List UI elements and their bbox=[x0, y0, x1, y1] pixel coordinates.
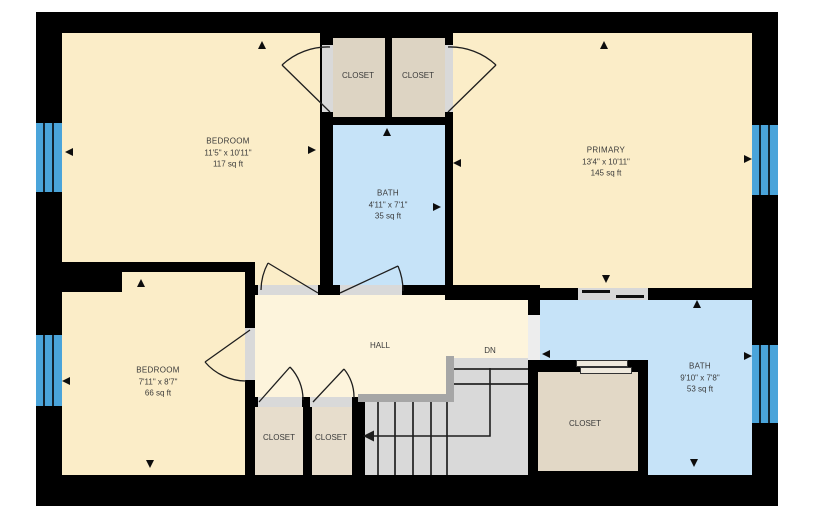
door-opening bbox=[258, 397, 302, 407]
stair-tread bbox=[412, 402, 414, 475]
wall bbox=[352, 397, 365, 475]
direction-arrow-icon bbox=[602, 275, 610, 283]
room-name: BEDROOM bbox=[204, 136, 251, 148]
room-area: 117 sq ft bbox=[204, 159, 251, 171]
wall bbox=[322, 117, 453, 125]
room-dimensions: 13'4" x 10'11" bbox=[582, 156, 630, 168]
pocket-door bbox=[578, 288, 648, 300]
closet-label: CLOSET bbox=[402, 70, 434, 82]
window-pane-divider bbox=[759, 125, 761, 195]
sliding-door-panel bbox=[580, 367, 632, 374]
door-opening bbox=[245, 328, 255, 380]
room-bedroom-1 bbox=[62, 33, 320, 262]
room-area: 53 sq ft bbox=[680, 384, 719, 396]
window bbox=[752, 125, 778, 195]
room-dimensions: 9'10" x 7'8" bbox=[680, 372, 719, 384]
window bbox=[36, 123, 62, 192]
window-pane-divider bbox=[52, 123, 54, 192]
sliding-closet-door bbox=[576, 360, 632, 375]
direction-arrow-icon bbox=[258, 41, 266, 49]
direction-arrow-icon bbox=[65, 148, 73, 156]
room-dimensions: 11'5" x 10'11" bbox=[204, 147, 251, 159]
room-dimensions: 4'11" x 7'1" bbox=[369, 199, 408, 211]
pocket-door-panel bbox=[582, 290, 610, 293]
window bbox=[752, 345, 778, 423]
room-area: 66 sq ft bbox=[136, 388, 179, 400]
window-pane-divider bbox=[43, 335, 45, 406]
room-dimensions: 7'11" x 8'7" bbox=[136, 376, 179, 388]
direction-arrow-icon bbox=[308, 146, 316, 154]
window-pane-divider bbox=[759, 345, 761, 423]
window-pane-divider bbox=[768, 125, 770, 195]
direction-arrow-icon bbox=[744, 155, 752, 163]
door-opening bbox=[528, 315, 540, 360]
room-name: BEDROOM bbox=[136, 365, 179, 377]
window-pane-divider bbox=[43, 123, 45, 192]
direction-arrow-icon bbox=[433, 203, 441, 211]
room-bedroom-1-annex bbox=[255, 262, 320, 285]
door-opening bbox=[322, 45, 333, 112]
room-label-primary: PRIMARY 13'4" x 10'11" 145 sq ft bbox=[582, 145, 630, 180]
stair-tread bbox=[430, 402, 432, 475]
wall bbox=[36, 262, 255, 272]
direction-arrow-icon bbox=[453, 159, 461, 167]
pocket-door-panel bbox=[616, 295, 644, 298]
window bbox=[36, 335, 62, 406]
room-label-bath-2: BATH 9'10" x 7'8" 53 sq ft bbox=[680, 361, 719, 396]
closet-label: CLOSET bbox=[569, 418, 601, 430]
wall bbox=[303, 407, 312, 475]
hall-label: HALL bbox=[370, 340, 390, 352]
room-label-bedroom-2: BEDROOM 7'11" x 8'7" 66 sq ft bbox=[136, 365, 179, 400]
stair-tread bbox=[446, 402, 448, 475]
direction-arrow-icon bbox=[62, 377, 70, 385]
stair-tread bbox=[394, 402, 396, 475]
closet-label: CLOSET bbox=[315, 432, 347, 444]
window-pane-divider bbox=[52, 335, 54, 406]
direction-arrow-icon bbox=[137, 279, 145, 287]
room-label-bedroom-1: BEDROOM 11'5" x 10'11" 117 sq ft bbox=[204, 136, 251, 171]
direction-arrow-icon bbox=[693, 300, 701, 308]
direction-arrow-icon bbox=[744, 352, 752, 360]
direction-arrow-icon bbox=[690, 459, 698, 467]
sliding-door-panel bbox=[576, 360, 628, 367]
stair-railing bbox=[358, 394, 454, 402]
closet-label: CLOSET bbox=[263, 432, 295, 444]
wall bbox=[385, 38, 392, 117]
window-pane-divider bbox=[768, 345, 770, 423]
door-opening bbox=[445, 45, 453, 112]
stair-tread bbox=[454, 368, 528, 370]
door-opening bbox=[340, 285, 402, 295]
room-name: BATH bbox=[680, 361, 719, 373]
direction-arrow-icon bbox=[146, 460, 154, 468]
room-area: 145 sq ft bbox=[582, 168, 630, 180]
room-name: BATH bbox=[369, 188, 408, 200]
direction-arrow-icon bbox=[383, 128, 391, 136]
door-opening bbox=[310, 397, 352, 407]
room-name: PRIMARY bbox=[582, 145, 630, 157]
stairs-down-label: DN bbox=[484, 345, 496, 357]
stair-tread bbox=[454, 383, 528, 385]
direction-arrow-icon bbox=[542, 350, 550, 358]
floor-plan: BEDROOM 11'5" x 10'11" 117 sq ft PRIMARY… bbox=[0, 0, 814, 520]
room-area: 35 sq ft bbox=[369, 211, 408, 223]
door-opening bbox=[258, 285, 318, 295]
room-label-bath-1: BATH 4'11" x 7'1" 35 sq ft bbox=[369, 188, 408, 223]
stairs-upper bbox=[446, 358, 528, 402]
stair-tread bbox=[377, 402, 379, 475]
direction-arrow-icon bbox=[600, 41, 608, 49]
closet-label: CLOSET bbox=[342, 70, 374, 82]
